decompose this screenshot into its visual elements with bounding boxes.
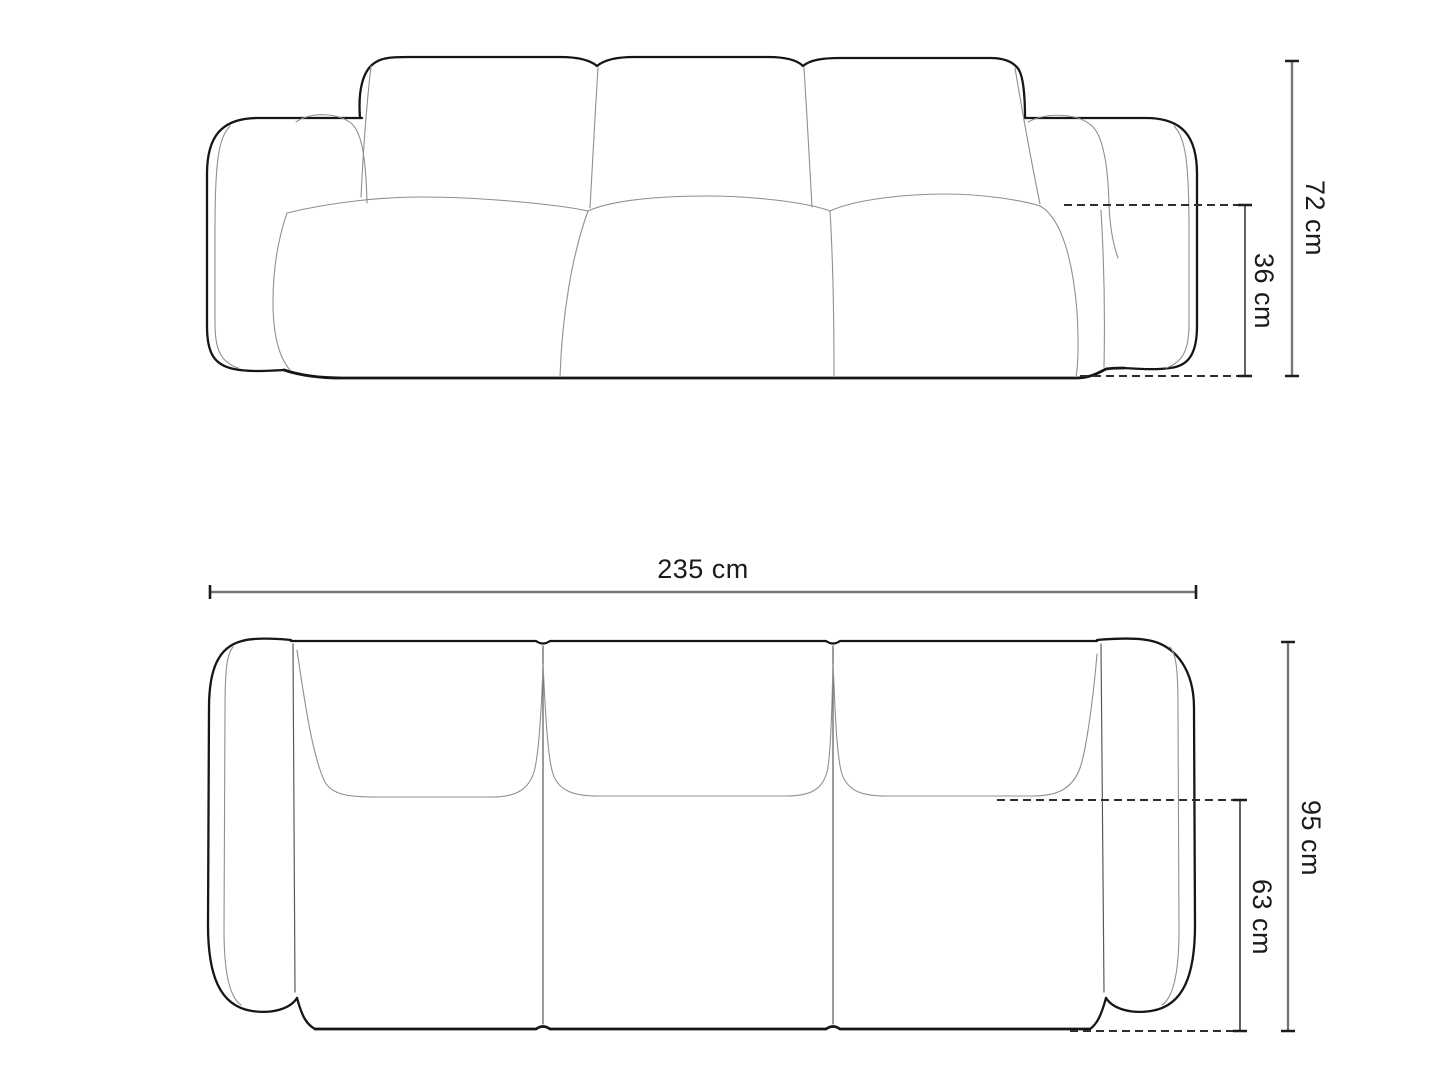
top-left-armrest-piping: [224, 647, 241, 1005]
top-view: 235 cm: [208, 554, 1326, 1031]
front-baseline: [284, 368, 1124, 378]
front-back-right-seam: [1015, 68, 1040, 204]
front-right-armrest-front-seam: [1101, 210, 1104, 367]
front-right-armrest-outline: [1025, 118, 1197, 369]
top-total-depth-dimension: 95 cm: [1281, 642, 1326, 1031]
top-right-armrest-piping: [1162, 647, 1179, 1005]
top-right-armrest-front-join: [1090, 998, 1106, 1029]
front-view: 36 cm 72 cm: [207, 57, 1330, 378]
front-total-height-dimension: 72 cm: [1285, 61, 1330, 376]
top-front-edge: [315, 1027, 1090, 1030]
top-right-armrest-inner-edge: [1101, 644, 1104, 992]
front-left-armrest-piping: [215, 126, 238, 368]
top-back-edge: [291, 641, 1097, 644]
top-total-width-dimension: 235 cm: [210, 554, 1196, 599]
front-right-armrest-piping: [1166, 126, 1189, 368]
top-total-width-label: 235 cm: [657, 554, 749, 584]
top-backrest2-curve: [543, 664, 833, 796]
front-seat-seam-1: [560, 211, 588, 377]
front-total-height-label: 72 cm: [1300, 180, 1330, 256]
top-total-depth-label: 95 cm: [1296, 800, 1326, 876]
top-backrest3-curve: [833, 654, 1097, 796]
top-seat-depth-dimension: 63 cm: [1233, 800, 1277, 1031]
front-seat-seam-2: [830, 211, 834, 377]
front-seat-height-label: 36 cm: [1249, 253, 1279, 329]
top-left-armrest-front-join: [297, 998, 315, 1029]
top-backrest1-curve: [297, 650, 543, 797]
top-left-armrest-inner-edge: [293, 644, 295, 992]
sofa-dimension-diagram: 36 cm 72 cm 235 cm: [0, 0, 1454, 1090]
front-back-seam-2: [804, 68, 812, 207]
front-left-armrest-inner-seam: [296, 115, 367, 203]
top-seat-depth-label: 63 cm: [1247, 879, 1277, 955]
front-seat-right-edge: [1040, 206, 1078, 377]
top-right-armrest-outline: [1097, 639, 1195, 1012]
top-left-armrest-outline: [208, 639, 297, 1012]
front-seat2-top-seam: [588, 196, 830, 211]
front-left-armrest-outline: [207, 118, 362, 371]
front-seat3-top-seam: [830, 194, 1040, 211]
front-right-armrest-inner-seam: [1028, 115, 1118, 258]
front-seat1-top-seam: [287, 197, 588, 213]
diagram-canvas: 36 cm 72 cm 235 cm: [0, 0, 1454, 1090]
front-seat-left-edge: [273, 213, 290, 370]
front-back-seam-1: [590, 68, 598, 208]
front-back-cushions-outline: [360, 57, 1025, 118]
front-seat-height-dimension: 36 cm: [1238, 205, 1279, 376]
